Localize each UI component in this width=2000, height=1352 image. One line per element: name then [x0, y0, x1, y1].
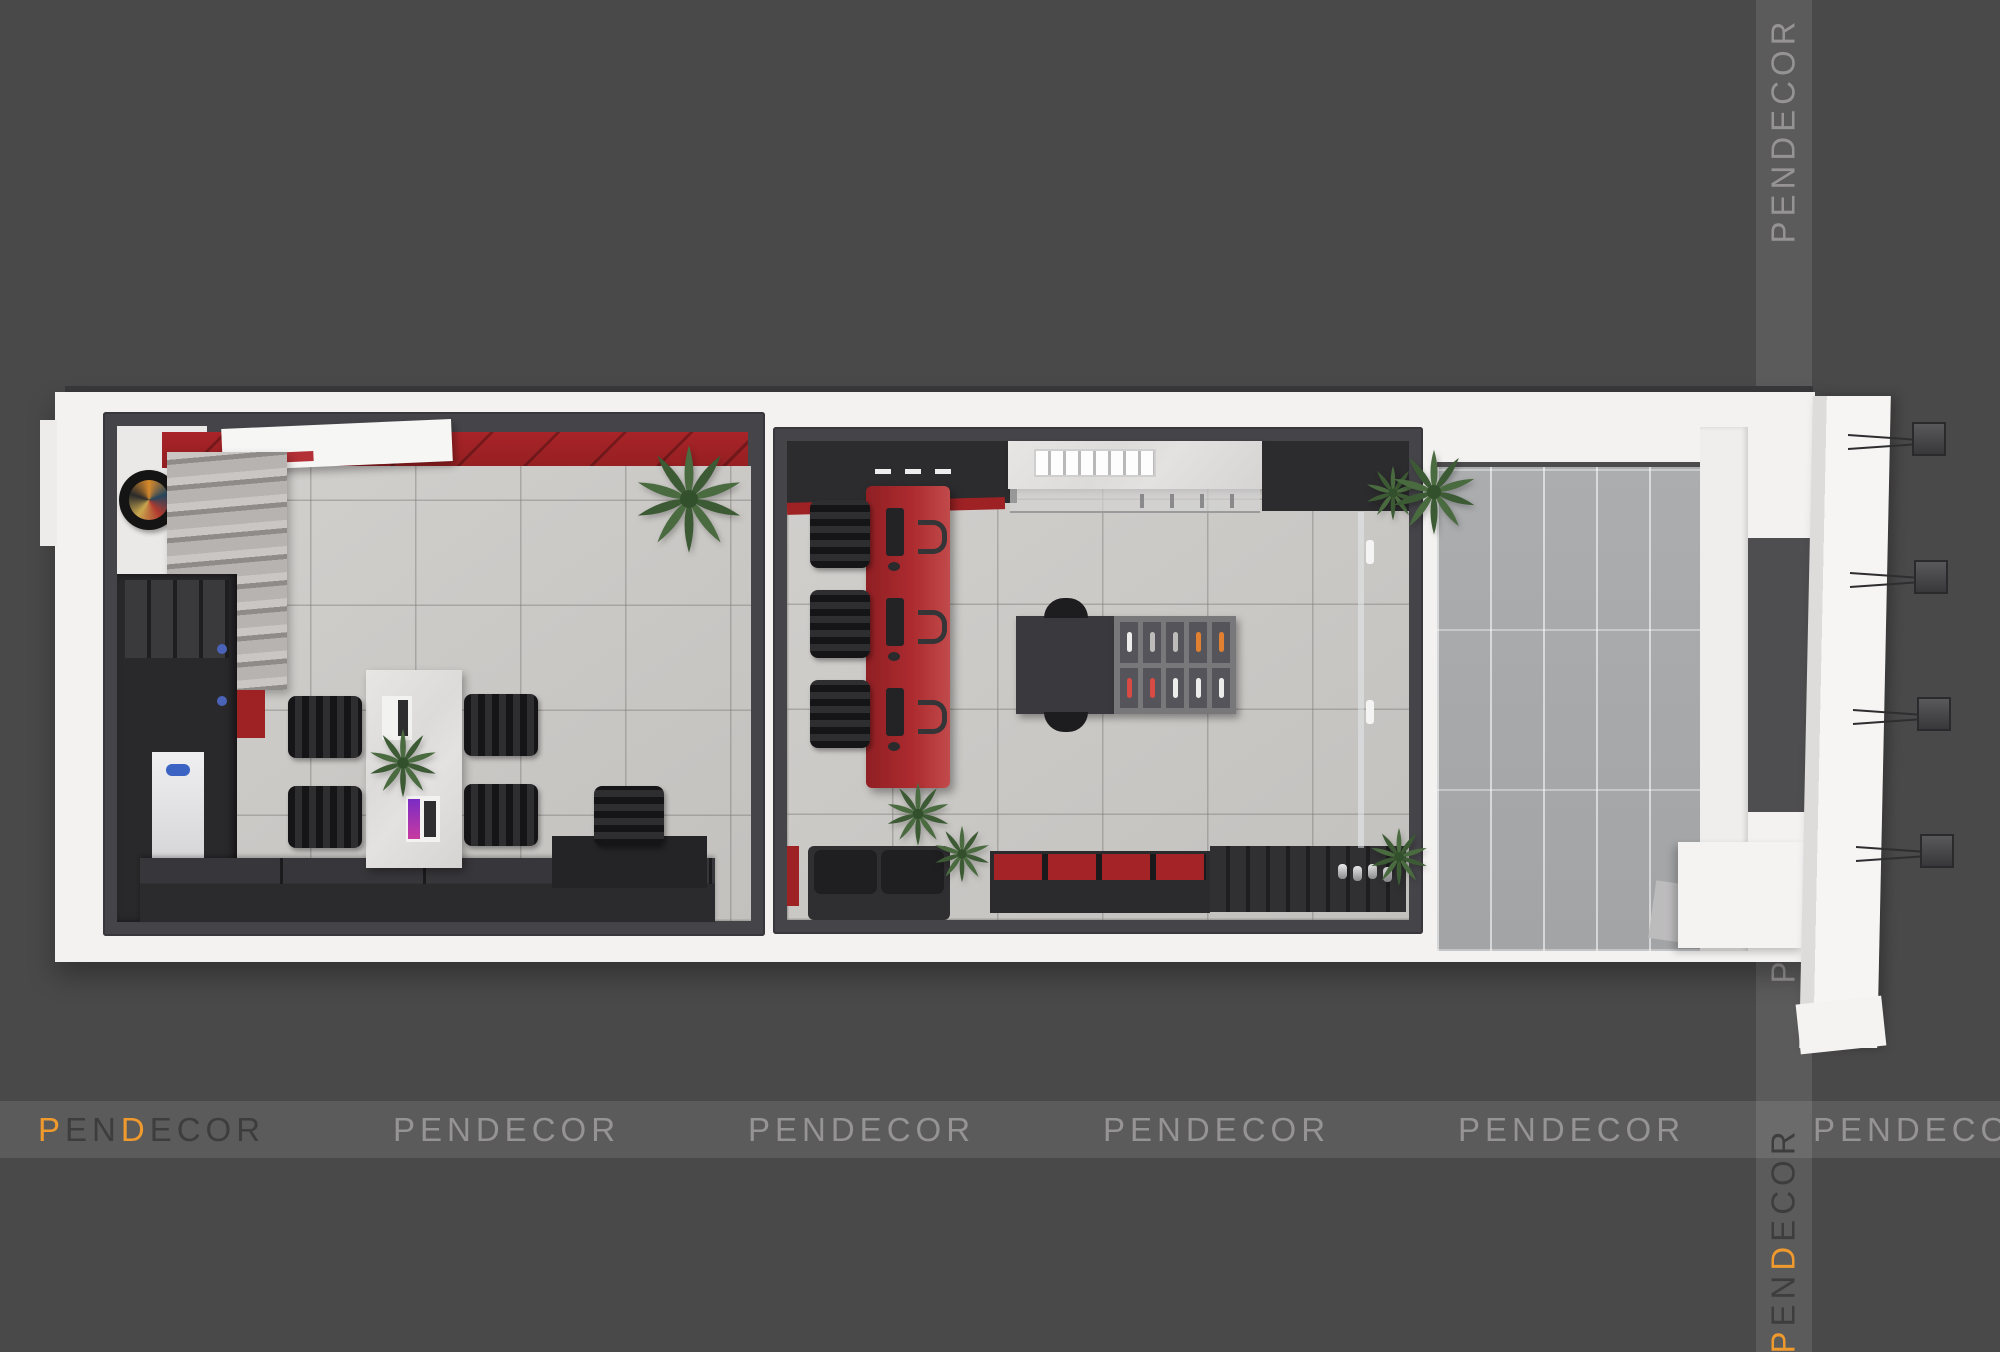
case-item: [1120, 668, 1138, 709]
tufted-chair: [288, 696, 362, 758]
floor-plant-icon: [930, 822, 994, 886]
hanging-tool: [1140, 494, 1144, 508]
glass-door-handle: [1366, 700, 1374, 724]
desk-chair: [810, 500, 870, 568]
hanging-tool: [1170, 494, 1174, 508]
hanging-tool: [1230, 494, 1234, 508]
watermark-bottom-6: PENDECOR: [1813, 1110, 2000, 1150]
case-item: [1143, 622, 1161, 663]
sofa-cushion: [814, 850, 877, 894]
fridge-logo: [166, 764, 190, 776]
chrome-item: [1353, 866, 1362, 881]
glass-door-handle: [1366, 540, 1374, 564]
square-table: [1016, 616, 1114, 714]
ceiling-spot: [875, 469, 891, 474]
keyboard: [886, 598, 904, 646]
watermark-bottom-5: PENDECOR: [1458, 1110, 1685, 1150]
mouse: [888, 742, 900, 751]
desk-chair: [810, 590, 870, 658]
product-display-case: [1114, 616, 1236, 714]
corner-plant-icon: [1366, 824, 1432, 890]
chair-arm-arc: [918, 520, 947, 554]
case-item: [1189, 622, 1207, 663]
keyboard: [886, 508, 904, 556]
ceiling-spot: [905, 469, 921, 474]
reception-desk-red: [866, 486, 950, 788]
lamp-head-icon: [1912, 422, 1946, 456]
chair-arm-arc: [918, 610, 947, 644]
tufted-chair: [464, 694, 538, 756]
watermark-vertical-1: PENDECOR: [1756, 35, 1812, 225]
porch-plant-icon: [1386, 444, 1482, 540]
top-counter-marble: [1008, 441, 1262, 489]
watermark-bottom-4: PENDECOR: [1103, 1110, 1330, 1150]
watermark-bottom-2: PENDECOR: [393, 1110, 620, 1150]
wall-clock-face: [129, 480, 169, 520]
entrance-opening: [1748, 538, 1810, 812]
chair-arm-arc: [918, 700, 947, 734]
hanging-tool: [1200, 494, 1204, 508]
blue-bottle: [217, 644, 227, 654]
red-counter-panels: [994, 854, 1206, 880]
watermark-vertical-4-accent: PENDECOR: [1756, 1145, 1812, 1335]
tufted-chair: [288, 786, 362, 848]
desk-chair: [810, 680, 870, 748]
entrance-counter: [1678, 842, 1804, 948]
laptop-screen-purple: [408, 799, 420, 839]
glass-shelf-band: [1010, 489, 1260, 513]
tufted-chair: [464, 784, 538, 846]
chrome-item: [1338, 864, 1347, 879]
lamp-head-icon: [1914, 560, 1948, 594]
office-chair: [594, 786, 664, 846]
keyboard: [886, 688, 904, 736]
glass-partition: [1358, 512, 1364, 848]
lamp-head-icon: [1917, 697, 1951, 731]
mouse: [888, 652, 900, 661]
mouse: [888, 562, 900, 571]
case-item: [1166, 668, 1184, 709]
case-item: [1212, 668, 1230, 709]
ceiling-spot: [935, 469, 951, 474]
table-plant-icon: [364, 724, 442, 802]
red-sliver-sofa-wall: [787, 846, 799, 906]
laptop-bottom: [406, 796, 440, 842]
watermark-bottom-1-accent: PENDECOR: [38, 1110, 265, 1150]
render-canvas: PENDECOR PENDECOR PENDECOR PENDECOR PEND…: [0, 0, 2000, 1352]
facade-bottom-wedge: [1796, 996, 1887, 1055]
watermark-bottom-3: PENDECOR: [748, 1110, 975, 1150]
corner-palm-icon: [628, 438, 750, 560]
sofa-base: [808, 846, 950, 920]
west-wall-pilaster: [40, 420, 57, 546]
laptop-keyboard: [424, 801, 436, 837]
case-item: [1189, 668, 1207, 709]
vent-grille: [1034, 449, 1156, 477]
case-item: [1143, 668, 1161, 709]
red-top-counter: [990, 851, 1210, 913]
cabinet-upper-slots: [125, 580, 229, 658]
case-item: [1166, 622, 1184, 663]
blue-bottle: [217, 696, 227, 706]
watermark-band-horizontal: [0, 1101, 2000, 1158]
case-item: [1120, 622, 1138, 663]
lamp-head-icon: [1920, 834, 1954, 868]
case-item: [1212, 622, 1230, 663]
